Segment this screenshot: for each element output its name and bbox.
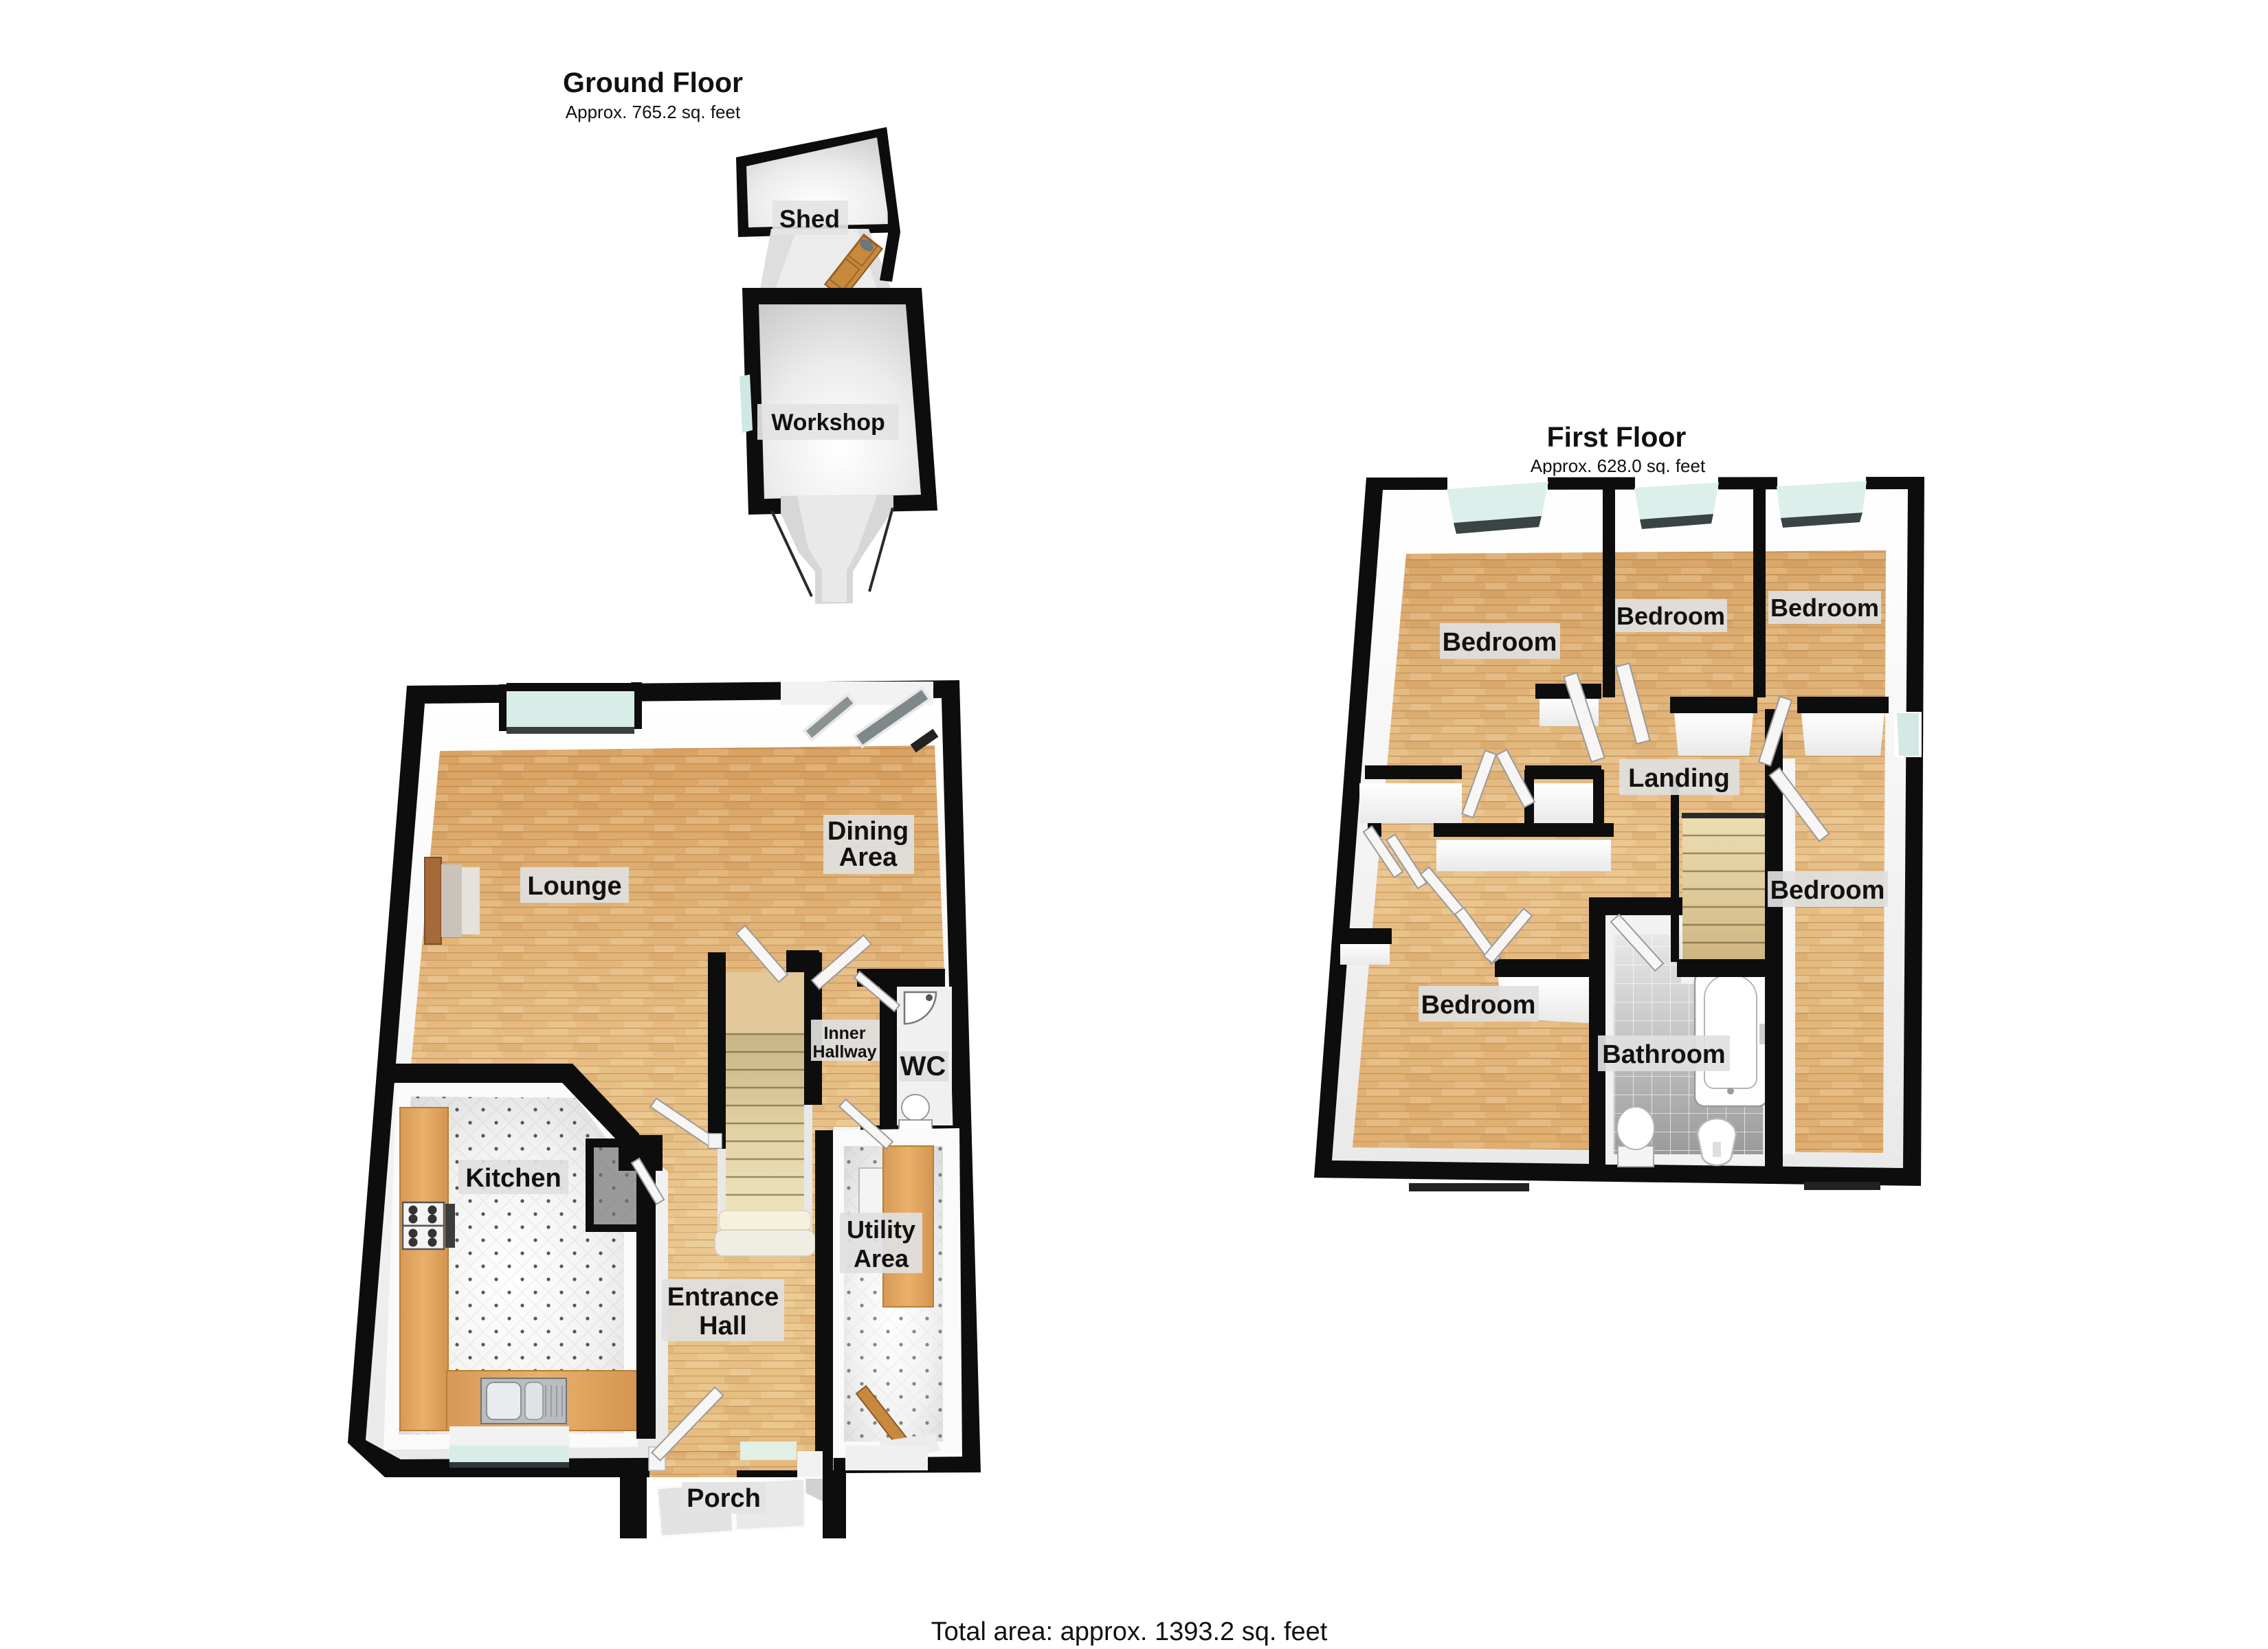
svg-text:Porch: Porch (687, 1484, 761, 1513)
svg-text:Area: Area (854, 1244, 909, 1272)
svg-text:Workshop: Workshop (771, 410, 885, 436)
svg-text:Bathroom: Bathroom (1602, 1040, 1725, 1069)
svg-text:Bedroom: Bedroom (1770, 876, 1885, 905)
svg-text:Hall: Hall (699, 1312, 747, 1340)
svg-text:Entrance: Entrance (667, 1283, 779, 1312)
svg-text:Approx. 628.0 sq. feet: Approx. 628.0 sq. feet (1531, 456, 1706, 476)
svg-text:Total area: approx. 1393.2 sq.: Total area: approx. 1393.2 sq. feet (931, 1617, 1328, 1646)
svg-text:Utility: Utility (847, 1215, 915, 1244)
svg-text:Hallway: Hallway (812, 1042, 876, 1062)
svg-text:Shed: Shed (779, 205, 840, 233)
svg-text:Bedroom: Bedroom (1421, 991, 1536, 1020)
svg-text:Inner: Inner (823, 1024, 865, 1043)
svg-text:Bedroom: Bedroom (1443, 628, 1557, 657)
svg-text:Ground Floor: Ground Floor (563, 67, 743, 98)
svg-text:WC: WC (900, 1051, 946, 1081)
svg-text:Approx. 765.2 sq. feet: Approx. 765.2 sq. feet (566, 102, 741, 122)
svg-text:Landing: Landing (1628, 764, 1730, 793)
svg-text:Bedroom: Bedroom (1616, 602, 1725, 630)
svg-text:Kitchen: Kitchen (465, 1164, 561, 1193)
svg-text:Area: Area (839, 843, 898, 872)
svg-text:First Floor: First Floor (1547, 421, 1687, 453)
svg-text:Lounge: Lounge (527, 872, 621, 901)
svg-text:Bedroom: Bedroom (1770, 594, 1879, 622)
svg-text:Dining: Dining (827, 817, 909, 846)
